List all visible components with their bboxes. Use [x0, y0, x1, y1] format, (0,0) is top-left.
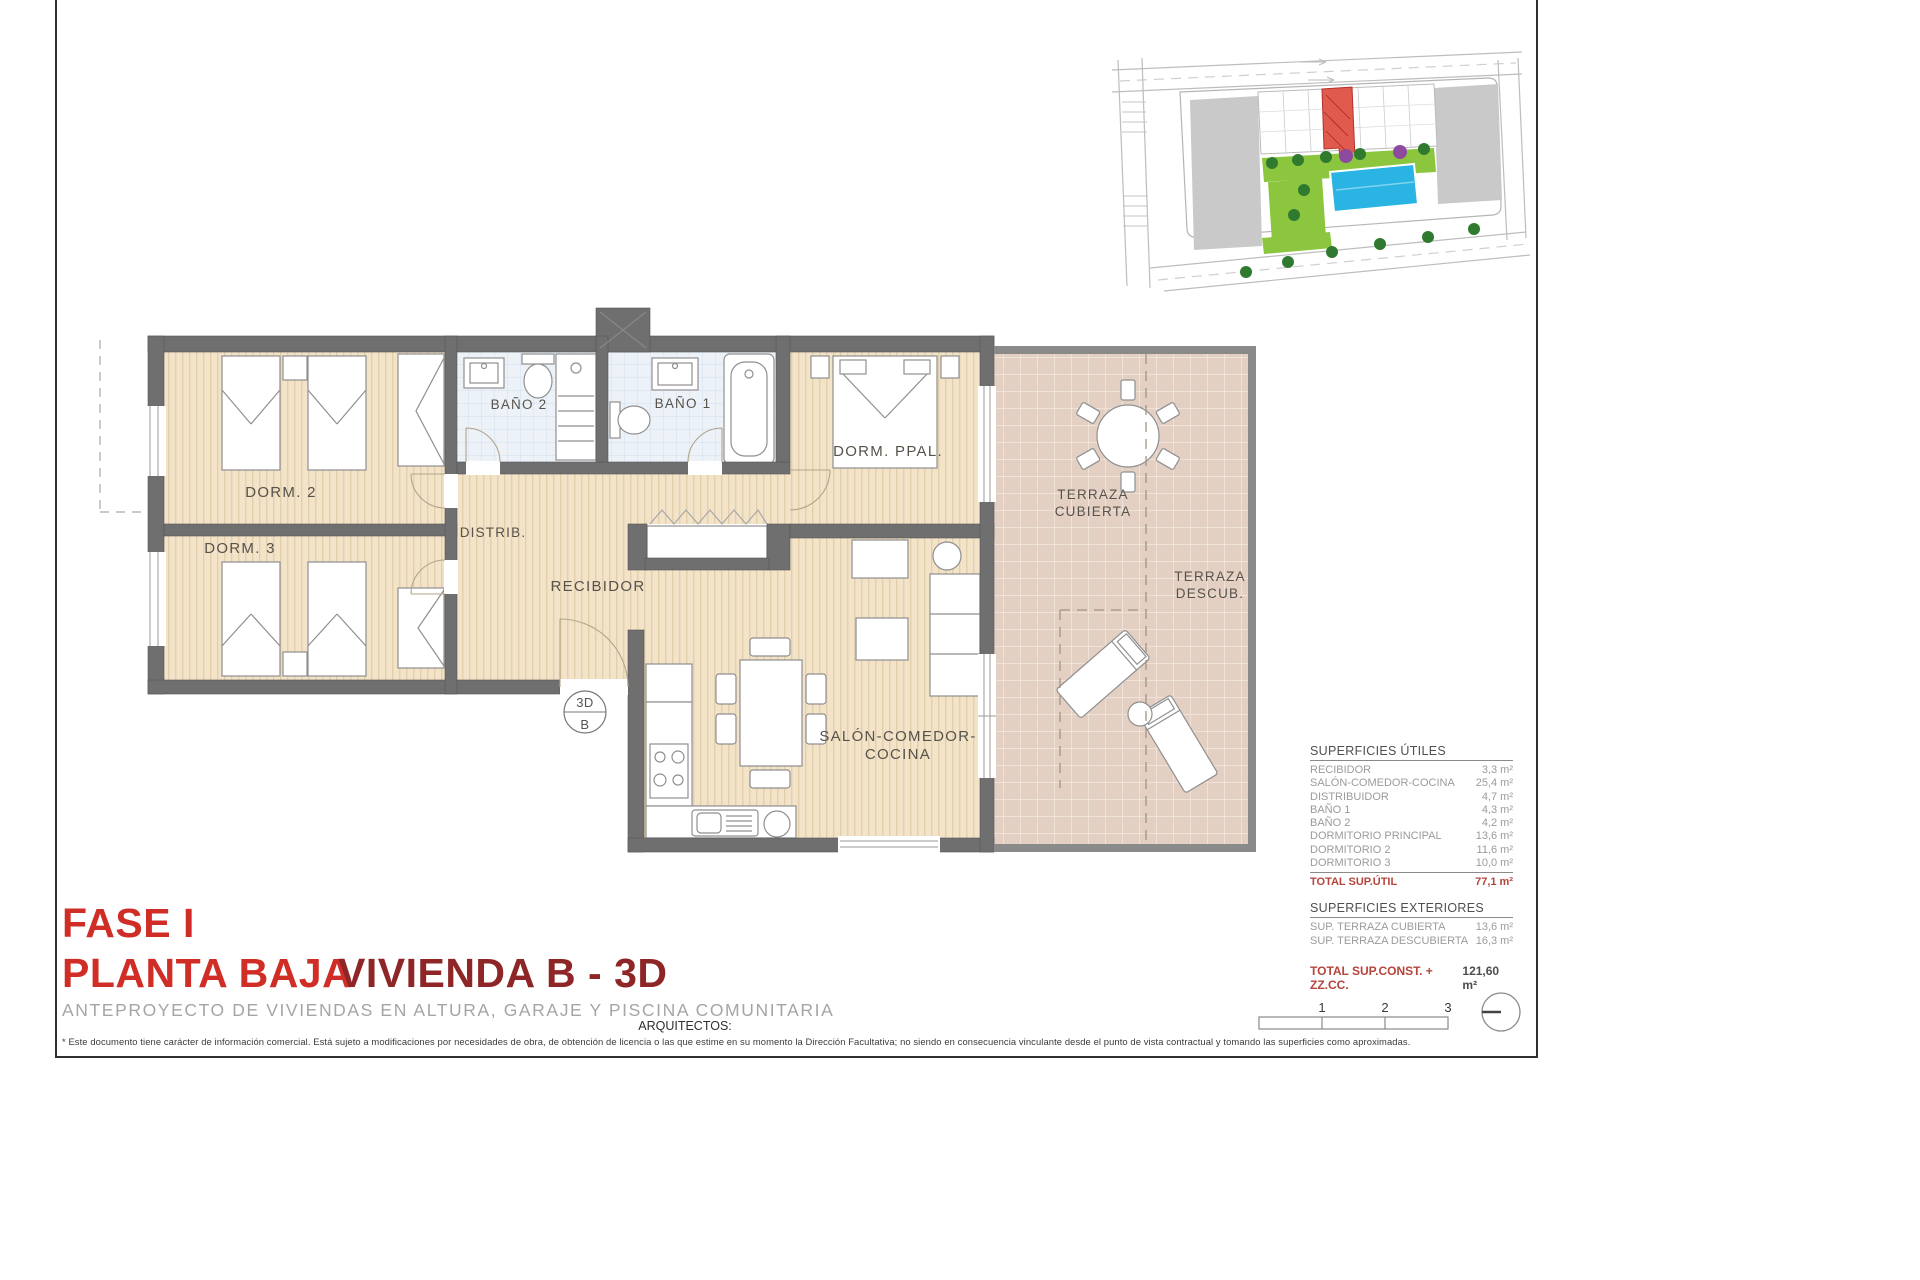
unit-marker-top: 3D [576, 695, 594, 710]
bed [222, 356, 280, 470]
kitchen-column [646, 664, 692, 702]
nightstand [811, 356, 829, 378]
round-table [1097, 405, 1159, 467]
total-label: TOTAL SUP.ÚTIL [1310, 876, 1397, 888]
toilet [618, 406, 650, 434]
surface-row: DISTRIBUIDOR4,7 m² [1310, 791, 1513, 804]
architects-label: ARQUITECTOS: [560, 1019, 810, 1033]
chair [806, 674, 826, 704]
phase-title: FASE I [62, 903, 195, 944]
terrace-side-table [1128, 702, 1152, 726]
surfaces-panel: SUPERFICIES ÚTILES RECIBIDOR3,3 m² SALÓN… [1310, 744, 1513, 992]
chair [750, 638, 790, 656]
surface-label: SALÓN-COMEDOR-COCINA [1310, 777, 1455, 790]
room-label-bano2: BAÑO 2 [491, 397, 548, 412]
surface-row: BAÑO 24,2 m² [1310, 817, 1513, 830]
property-dashed-line [100, 340, 148, 512]
pillow [904, 360, 930, 374]
plan-sheet: DORM. 2 DORM. 3 BAÑO 2 BAÑO 1 DORM. PPAL… [0, 0, 1920, 1280]
nightstand [283, 356, 307, 380]
surface-row: RECIBIDOR3,3 m² [1310, 764, 1513, 777]
nightstand [941, 356, 959, 378]
site-building-left [1190, 96, 1262, 250]
floor-plan: DORM. 2 DORM. 3 BAÑO 2 BAÑO 1 DORM. PPAL… [100, 308, 1256, 854]
surface-row: DORMITORIO PRINCIPAL13,6 m² [1310, 830, 1513, 843]
floor-title: PLANTA BAJA [62, 953, 352, 994]
surface-label: DORMITORIO 2 [1310, 844, 1390, 857]
room-label-terraza-descub-line1: TERRAZA [1174, 569, 1245, 584]
site-plan [1112, 52, 1530, 291]
pillow [840, 360, 866, 374]
surface-value: 4,3 m² [1482, 804, 1513, 817]
dining-table [740, 660, 802, 766]
surface-label: BAÑO 2 [1310, 817, 1350, 830]
bed [308, 356, 366, 470]
surface-value: 4,2 m² [1482, 817, 1513, 830]
surface-label: SUP. TERRAZA DESCUBIERTA [1310, 935, 1468, 948]
surfaces-grand-total: TOTAL SUP.CONST. + ZZ.CC.121,60 m² [1310, 964, 1513, 992]
surface-row: SUP. TERRAZA CUBIERTA13,6 m² [1310, 921, 1513, 934]
room-label-dorm2: DORM. 2 [245, 484, 317, 501]
total-value: 77,1 m² [1475, 876, 1513, 888]
scale-label-1: 1 [1318, 1000, 1325, 1015]
surface-value: 13,6 m² [1476, 921, 1513, 934]
sheet-frame-right [1536, 0, 1538, 1058]
surface-value: 10,0 m² [1476, 857, 1513, 870]
surface-label: DORMITORIO PRINCIPAL [1310, 830, 1442, 843]
scale-label-3: 3 [1444, 1000, 1451, 1015]
surface-value: 16,3 m² [1476, 935, 1513, 948]
toilet [524, 364, 552, 398]
room-label-terraza-cubierta-line2: CUBIERTA [1055, 504, 1132, 519]
surface-row: DORMITORIO 310,0 m² [1310, 857, 1513, 870]
grand-total-label: TOTAL SUP.CONST. + ZZ.CC. [1310, 964, 1462, 992]
room-label-terraza-descub-line2: DESCUB. [1176, 586, 1244, 601]
room-label-terraza-cubierta-line1: TERRAZA [1057, 487, 1128, 502]
chair [716, 714, 736, 744]
side-table [933, 542, 961, 570]
room-label-salon-line1: SALÓN-COMEDOR- [819, 728, 976, 745]
surface-row: BAÑO 14,3 m² [1310, 804, 1513, 817]
closet [647, 526, 767, 560]
sofa [930, 574, 980, 696]
coffee-table [856, 618, 908, 660]
surface-row: SALÓN-COMEDOR-COCINA25,4 m² [1310, 777, 1513, 790]
sheet-frame-bottom [55, 1056, 1538, 1058]
scale-label-2: 2 [1381, 1000, 1388, 1015]
disclaimer-text: * Este documento tiene carácter de infor… [62, 1036, 1410, 1047]
surface-value: 4,7 m² [1482, 791, 1513, 804]
chair [750, 770, 790, 788]
room-label-dorm-ppal: DORM. PPAL. [833, 443, 943, 460]
surface-value: 3,3 m² [1482, 764, 1513, 777]
chair [716, 674, 736, 704]
project-subtitle: ANTEPROYECTO DE VIVIENDAS EN ALTURA, GAR… [62, 1000, 834, 1021]
room-label-distrib: DISTRIB. [460, 525, 527, 540]
kitchen-sink-basin [697, 813, 721, 833]
sheet-frame-left [55, 0, 57, 1058]
site-pool [1330, 164, 1418, 212]
surface-label: DORMITORIO 3 [1310, 857, 1390, 870]
unit-marker-bottom: B [580, 717, 589, 732]
room-label-recibidor: RECIBIDOR [550, 578, 645, 595]
surface-value: 13,6 m² [1476, 830, 1513, 843]
surfaces-utiles-title: SUPERFICIES ÚTILES [1310, 744, 1513, 761]
surface-value: 11,6 m² [1477, 844, 1513, 857]
nightstand [283, 652, 307, 676]
grand-total-value: 121,60 m² [1462, 964, 1513, 992]
surface-label: RECIBIDOR [1310, 764, 1371, 777]
tv-unit [852, 540, 908, 578]
unit-marker: 3D B [564, 691, 606, 733]
scale-bar: 1 2 3 [1259, 993, 1520, 1031]
room-label-bano1: BAÑO 1 [655, 396, 712, 411]
room-label-dorm3: DORM. 3 [204, 540, 276, 557]
toilet-tank [522, 354, 554, 364]
room-label-salon-line2: COCINA [865, 746, 931, 763]
drawing-canvas: DORM. 2 DORM. 3 BAÑO 2 BAÑO 1 DORM. PPAL… [0, 0, 1920, 1280]
surfaces-utiles-total: TOTAL SUP.ÚTIL77,1 m² [1310, 872, 1513, 888]
site-building-right [1434, 84, 1502, 204]
surfaces-exteriores-title: SUPERFICIES EXTERIORES [1310, 901, 1513, 918]
surface-label: BAÑO 1 [1310, 804, 1350, 817]
unit-title: VIVIENDA B - 3D [338, 953, 667, 994]
bed [308, 562, 366, 676]
site-highlighted-unit [1322, 87, 1355, 159]
surface-row: DORMITORIO 211,6 m² [1310, 844, 1513, 857]
surface-value: 25,4 m² [1476, 777, 1513, 790]
washing-machine [764, 811, 790, 837]
surface-row: SUP. TERRAZA DESCUBIERTA16,3 m² [1310, 935, 1513, 948]
bed [222, 562, 280, 676]
surface-label: DISTRIBUIDOR [1310, 791, 1389, 804]
surface-label: SUP. TERRAZA CUBIERTA [1310, 921, 1446, 934]
